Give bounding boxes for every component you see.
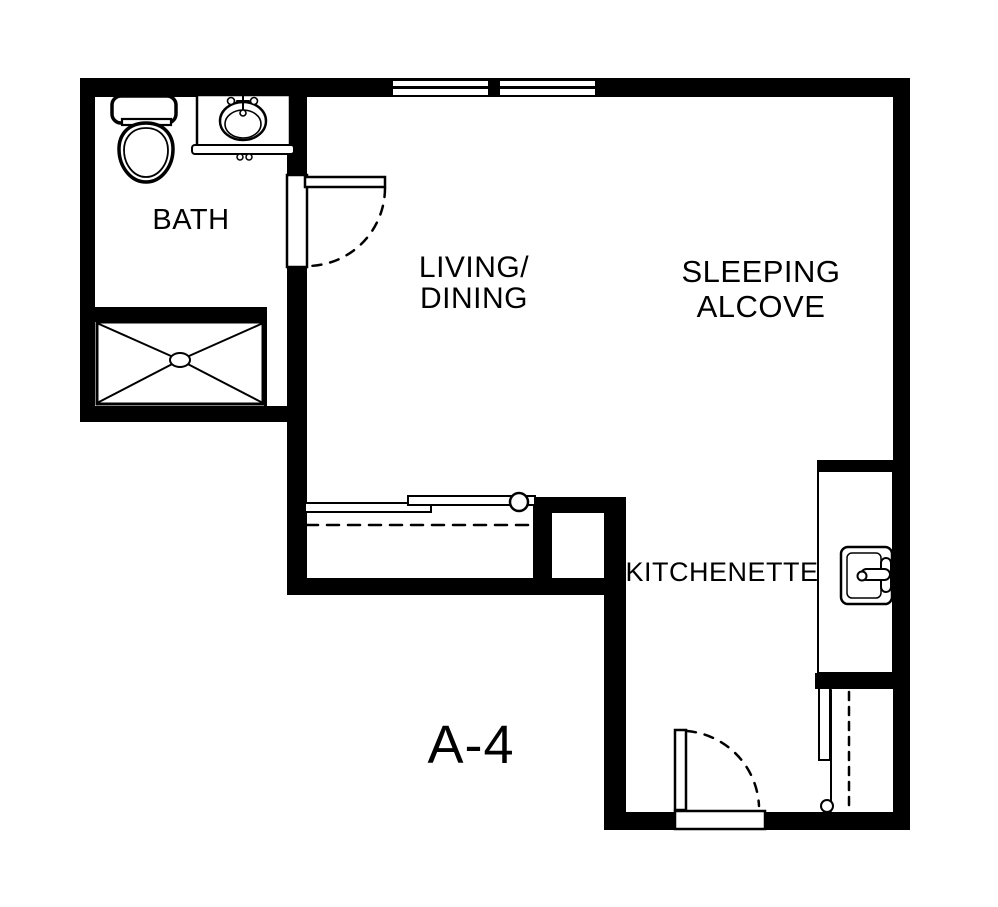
window-icon [500,81,595,95]
toilet-icon [112,96,176,182]
vanity-sink-icon [192,95,294,160]
wall-entry-left [604,595,626,830]
window-icon [393,81,488,95]
wall-bath-bottom [80,406,307,422]
entry-swing-door-icon [675,730,765,829]
wall-duct-right [604,497,626,595]
wall-left-outer [80,78,95,422]
sliding-closet-door-icon [305,493,535,525]
bath-swing-door-icon [287,175,385,267]
wall-bath-shower-divider [95,307,265,322]
kitchen-sink-icon [841,547,892,604]
floor-plan: BATH LIVING/ DINING SLEEPING ALCOVE KITC… [0,0,998,907]
wall-right-outer [893,78,910,830]
sleeping-alcove-label-line2: ALCOVE [681,289,840,324]
kitchenette-room-label: KITCHENETTE [625,558,818,587]
unit-number-label: A-4 [427,716,514,774]
wall-closet-bottom [287,578,626,595]
wall-bath-living-lower [287,267,307,595]
living-dining-label-line1: LIVING/ [419,252,529,283]
living-dining-label-line2: DINING [419,283,529,314]
living-dining-room-label: LIVING/ DINING [419,252,529,314]
wardrobe-icon [819,688,849,812]
wall-under-counter [815,673,903,689]
sleeping-alcove-label-line1: SLEEPING [681,254,840,289]
bath-room-label: BATH [152,205,229,236]
sleeping-alcove-room-label: SLEEPING ALCOVE [681,254,840,324]
shower-icon [97,322,263,404]
